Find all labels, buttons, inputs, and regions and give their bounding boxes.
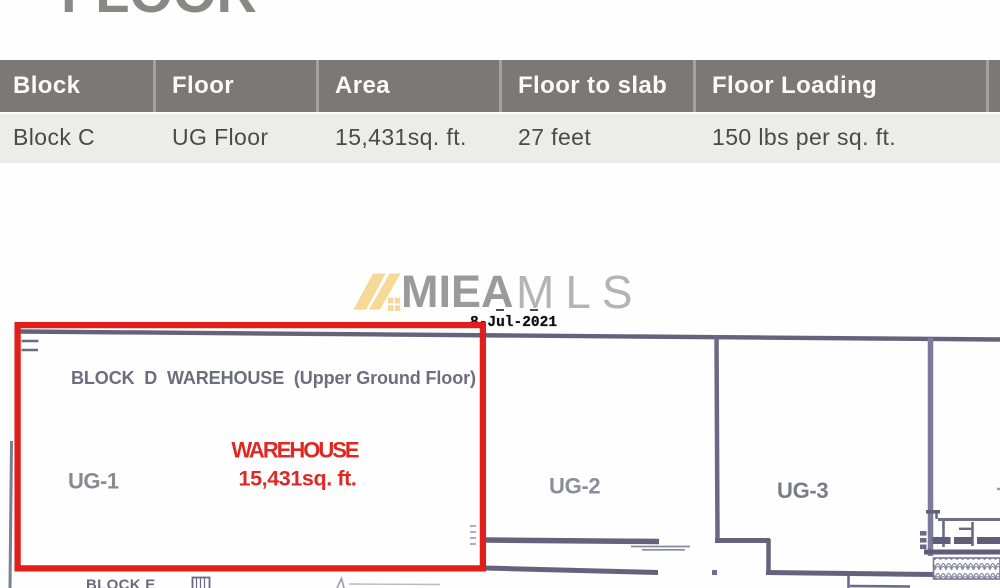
- svg-text:BLOCK D WAREHOUSE (Upper Gr: BLOCK D WAREHOUSE (Upper Ground Floor): [71, 368, 476, 388]
- svg-text:UG-3: UG-3: [777, 478, 828, 503]
- svg-text:WAREHOUSE: WAREHOUSE: [231, 438, 359, 463]
- svg-text:BLOCK E: BLOCK E: [86, 577, 156, 588]
- svg-text:UG-1: UG-1: [68, 469, 119, 494]
- svg-text:UG-2: UG-2: [549, 474, 600, 499]
- svg-text:15,431sq. ft.: 15,431sq. ft.: [239, 467, 357, 491]
